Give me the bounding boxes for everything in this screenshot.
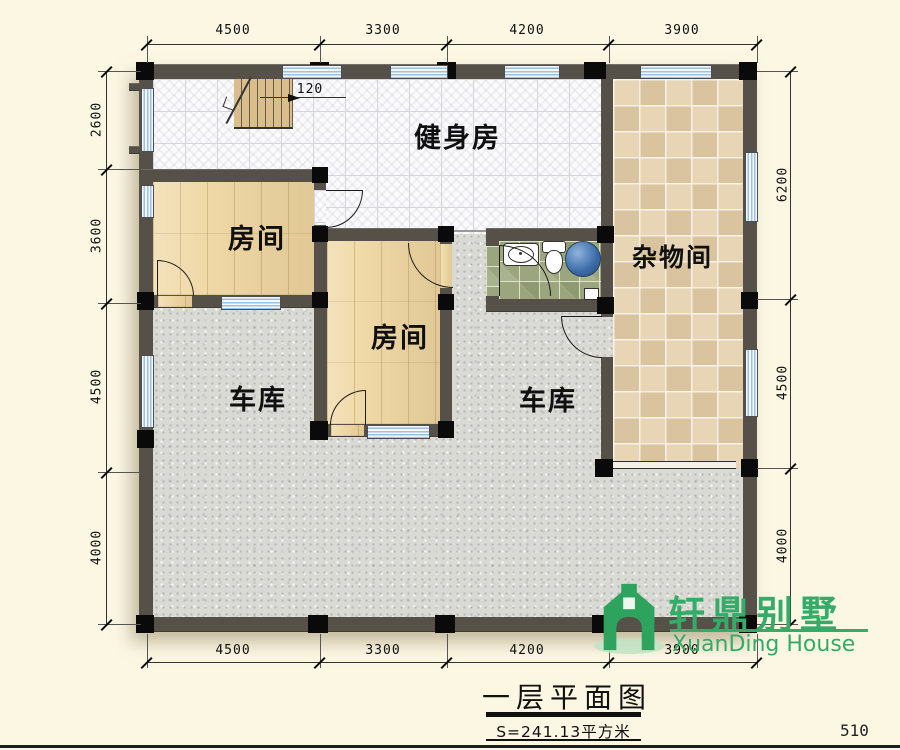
dim-label: 3900 <box>652 23 712 38</box>
room-label-storage: 杂物间 <box>632 238 713 274</box>
column <box>435 615 455 633</box>
dim-label: 4000 <box>776 521 791 571</box>
column <box>595 459 613 477</box>
column <box>312 226 328 242</box>
door-opening <box>601 317 613 357</box>
column <box>310 421 328 440</box>
window <box>504 65 560 79</box>
floor-plan-sheet: 120 健身房 杂物间 房间 房间 车库 车库 4500 3300 4200 3… <box>0 0 900 750</box>
window <box>141 185 154 218</box>
room-label-bedroom1: 房间 <box>228 217 286 256</box>
title-underline-thin <box>486 739 641 741</box>
room-label-gym: 健身房 <box>414 116 501 155</box>
dim-label: 2600 <box>90 95 105 145</box>
dim-label: 3600 <box>90 211 105 261</box>
column <box>308 615 328 633</box>
window <box>745 349 758 417</box>
sheet-bottom-rule <box>0 745 900 748</box>
column <box>438 421 454 438</box>
wash-basin-icon <box>565 241 601 277</box>
storage-opening-threshold <box>613 461 736 469</box>
column <box>597 226 614 243</box>
window <box>745 152 758 222</box>
dim-label: 4200 <box>497 643 557 658</box>
dim-label: 3300 <box>353 643 413 658</box>
plan-title: 一层平面图 <box>472 676 662 716</box>
column <box>739 62 757 80</box>
window <box>390 65 448 79</box>
room-label-bedroom2: 房间 <box>371 316 429 355</box>
column <box>137 292 154 310</box>
stair-dim-line <box>260 97 346 98</box>
dim-label: 4200 <box>497 23 557 38</box>
window <box>640 65 712 79</box>
door-opening <box>158 296 192 307</box>
column <box>597 297 614 314</box>
logo-text-en: XuanDing House <box>672 632 855 657</box>
window <box>221 296 281 310</box>
floor-transition-line <box>452 230 486 232</box>
title-underline-thick <box>486 712 641 717</box>
door-opening <box>331 425 364 436</box>
column <box>312 292 328 308</box>
wall-pilaster <box>129 83 140 91</box>
dim-label: 6200 <box>776 160 791 210</box>
dim-label: 4500 <box>203 23 263 38</box>
dim-label: 4500 <box>90 362 105 412</box>
room-label-garage-left: 车库 <box>229 378 287 417</box>
sheet-number: 510 <box>840 721 869 740</box>
dim-label: 4500 <box>776 358 791 408</box>
stair-dim-label: 120 <box>280 82 340 97</box>
column <box>438 226 454 242</box>
door-opening <box>314 190 326 225</box>
window <box>141 355 154 428</box>
column <box>137 430 154 448</box>
toilet-icon <box>542 241 564 273</box>
column <box>584 62 606 79</box>
dim-label: 4000 <box>90 523 105 573</box>
window <box>141 88 154 152</box>
dim-label: 3300 <box>353 23 413 38</box>
wall-pilaster <box>129 146 140 154</box>
column <box>312 167 328 183</box>
window <box>282 65 342 79</box>
column <box>438 294 454 310</box>
column <box>741 459 758 477</box>
room-label-garage-right: 车库 <box>519 379 577 418</box>
dim-label: 4500 <box>203 643 263 658</box>
door-opening <box>486 246 499 296</box>
window <box>367 425 430 439</box>
column <box>741 292 758 309</box>
xuanding-house-logo-icon <box>592 576 670 656</box>
